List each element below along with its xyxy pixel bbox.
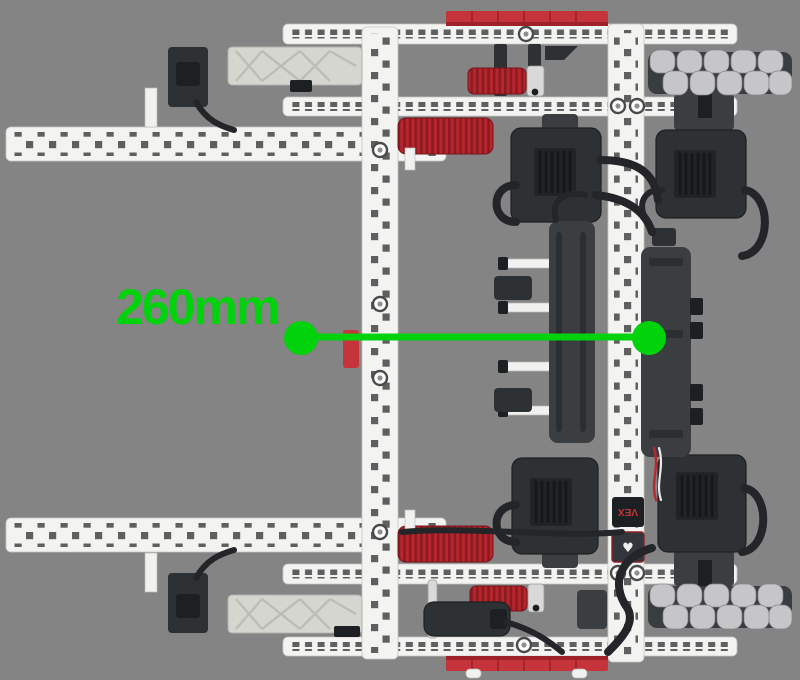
roller (758, 50, 783, 73)
axle (405, 148, 415, 170)
bumper-foot (466, 669, 481, 678)
battery-clamp (494, 388, 532, 412)
measurement-endpoint-right (632, 321, 666, 355)
roller (650, 584, 675, 607)
robot-measurement-diagram: VEX ♥ 260mm (0, 0, 800, 680)
roller (758, 584, 783, 607)
claw-standoff (145, 553, 157, 592)
beam-holes (368, 33, 392, 653)
gear-small (468, 68, 526, 94)
smart-port (690, 408, 703, 425)
measurement-label: 260mm (116, 279, 278, 335)
bumper-foot (572, 669, 587, 678)
measurement-endpoint-left (284, 321, 318, 355)
smart-port (690, 298, 703, 315)
roller (704, 584, 729, 607)
roller (690, 71, 715, 95)
battery-body (549, 221, 595, 443)
roller (704, 50, 729, 73)
bumper-top (446, 11, 608, 26)
smart-port (690, 322, 703, 339)
standoff (504, 362, 550, 371)
roller (731, 584, 756, 607)
smart-port (690, 384, 703, 401)
claw-mount (290, 80, 312, 92)
battery-clamp (494, 276, 532, 300)
switch-plunger (176, 594, 200, 618)
motor-bottom-center (512, 458, 598, 568)
roller (744, 71, 769, 95)
roller (663, 605, 688, 629)
robot-top-view: VEX ♥ 260mm (0, 0, 800, 680)
claw-standoff (145, 88, 157, 127)
standoff (504, 303, 550, 312)
claw-mount (334, 626, 360, 637)
sensor-box-bottom (577, 590, 607, 629)
roller (769, 71, 792, 95)
roller (650, 50, 675, 73)
beam-holes (291, 570, 729, 579)
switch-plunger (176, 62, 200, 86)
standoff (504, 259, 550, 268)
roller (717, 605, 742, 629)
roller (690, 605, 715, 629)
roller (717, 71, 742, 95)
beam-holes (291, 642, 729, 651)
motor-top-right (656, 118, 746, 218)
motor-bottom-left (424, 602, 510, 636)
roller (769, 605, 792, 629)
roller (663, 71, 688, 95)
beam-holes (291, 102, 729, 111)
roller (677, 50, 702, 73)
roller (677, 584, 702, 607)
roller (744, 605, 769, 629)
motor-bottom-right (658, 455, 746, 560)
roller (731, 50, 756, 73)
vex-logo: VEX (618, 506, 638, 517)
beam-holes (291, 30, 729, 39)
